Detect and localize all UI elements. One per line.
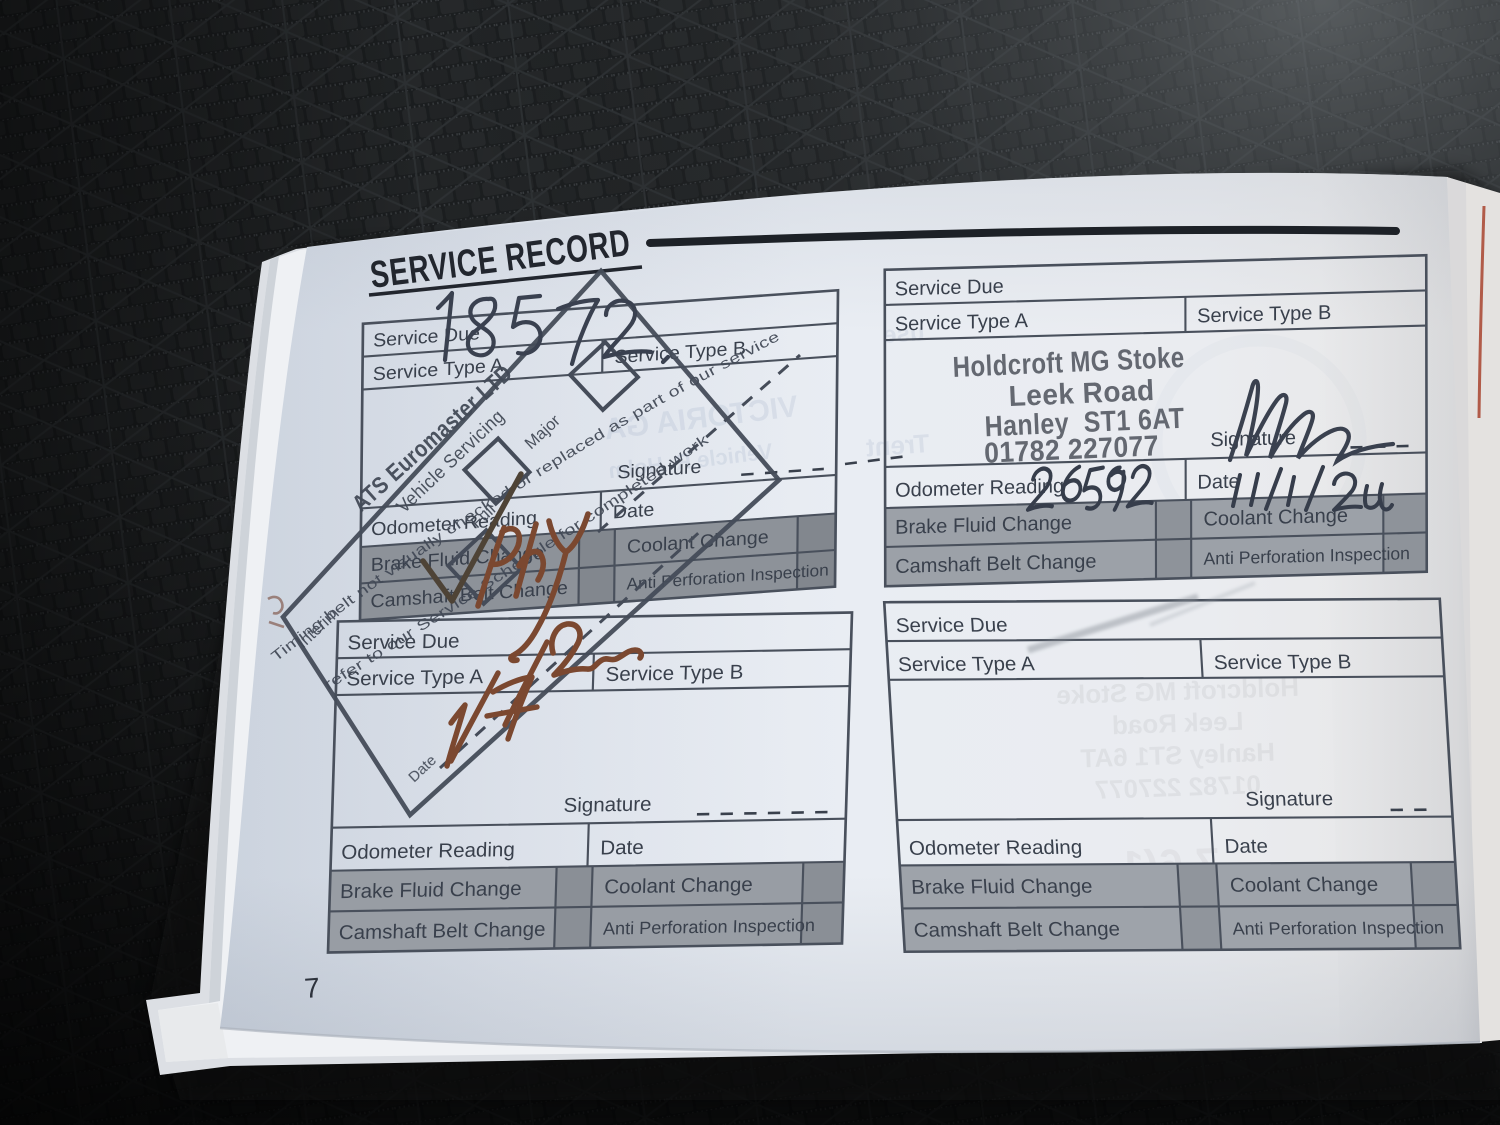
svg-text:Service Type B: Service Type B: [1213, 651, 1352, 674]
svg-text:Signature: Signature: [1245, 788, 1334, 810]
svg-text:Brake Fluid Change: Brake Fluid Change: [911, 876, 1093, 899]
svg-text:Odometer Reading: Odometer Reading: [908, 837, 1082, 860]
svg-text:Coolant Change: Coolant Change: [604, 874, 753, 898]
svg-text:Date: Date: [1224, 836, 1269, 858]
svg-text:Service Type A: Service Type A: [898, 653, 1036, 676]
svg-text:Service Type B: Service Type B: [605, 662, 743, 686]
svg-text:Camshaft Belt Change: Camshaft Belt Change: [339, 919, 546, 944]
svg-text:Anti Perforation Inspection: Anti Perforation Inspection: [1232, 918, 1445, 939]
svg-text:Leek Road: Leek Road: [1111, 706, 1243, 741]
svg-text:Signature: Signature: [563, 794, 652, 817]
svg-text:Date: Date: [600, 837, 644, 859]
svg-text:Anti Perforation Inspection: Anti Perforation Inspection: [603, 915, 816, 938]
svg-text:Camshaft Belt Change: Camshaft Belt Change: [913, 919, 1120, 942]
svg-text:Coolant Change: Coolant Change: [1229, 874, 1378, 897]
svg-text:Service Type B: Service Type B: [1197, 302, 1331, 328]
svg-text:Service Due: Service Due: [895, 276, 1004, 301]
svg-text:7: 7: [303, 972, 321, 1004]
svg-text:Service Due: Service Due: [895, 615, 1008, 637]
svg-text:Brake Fluid Change: Brake Fluid Change: [340, 878, 522, 903]
svg-text:01782 227077: 01782 227077: [1094, 769, 1261, 805]
svg-text:Coolant Change: Coolant Change: [1203, 505, 1348, 531]
svg-text:Service Type A: Service Type A: [895, 310, 1029, 336]
svg-text:Date: Date: [1197, 471, 1239, 494]
svg-text:Odometer Reading: Odometer Reading: [341, 839, 515, 864]
